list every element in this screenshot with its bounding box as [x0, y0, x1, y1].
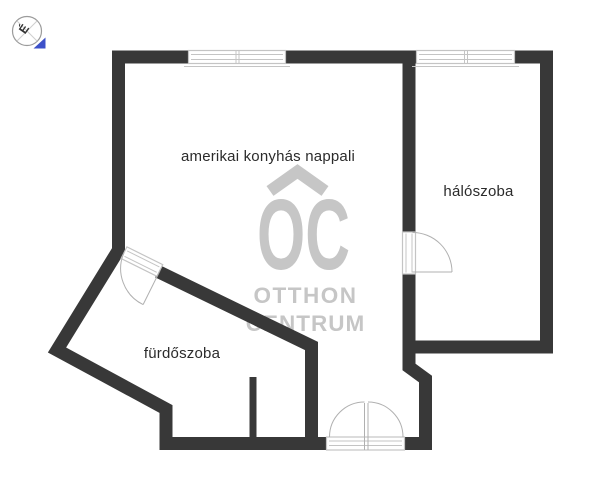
watermark-line1: OTTHON — [254, 283, 358, 308]
door-swing-arc-right — [368, 402, 403, 437]
door-leaf — [143, 271, 160, 305]
floorplan-canvas: OC OTTHON CENTRUM — [0, 0, 603, 500]
wall-divider-lower-step — [402, 274, 426, 444]
window-frame — [189, 51, 286, 64]
floorplan-svg: OC OTTHON CENTRUM — [0, 0, 603, 500]
window-bedroom — [412, 51, 519, 67]
room-label-bedroom: hálószoba — [443, 183, 514, 200]
room-label-bathroom: fürdőszoba — [144, 345, 221, 362]
watermark-logo: OC OTTHON CENTRUM — [246, 172, 366, 337]
window-living-room — [184, 51, 290, 67]
door-swing-arc — [413, 233, 453, 273]
wall-top-right-and-bedroom — [403, 57, 547, 347]
door-swing-arc-left — [330, 402, 365, 437]
window-frame — [417, 51, 515, 64]
door-bedroom — [403, 232, 453, 274]
door-frame — [327, 437, 405, 450]
door-bathroom — [121, 247, 163, 305]
door-frame — [403, 232, 416, 274]
double-door-balcony — [327, 402, 405, 450]
watermark-initials: OC — [257, 179, 350, 291]
compass-icon: É — [13, 17, 46, 49]
room-label-living: amerikai konyhás nappali — [181, 148, 355, 165]
